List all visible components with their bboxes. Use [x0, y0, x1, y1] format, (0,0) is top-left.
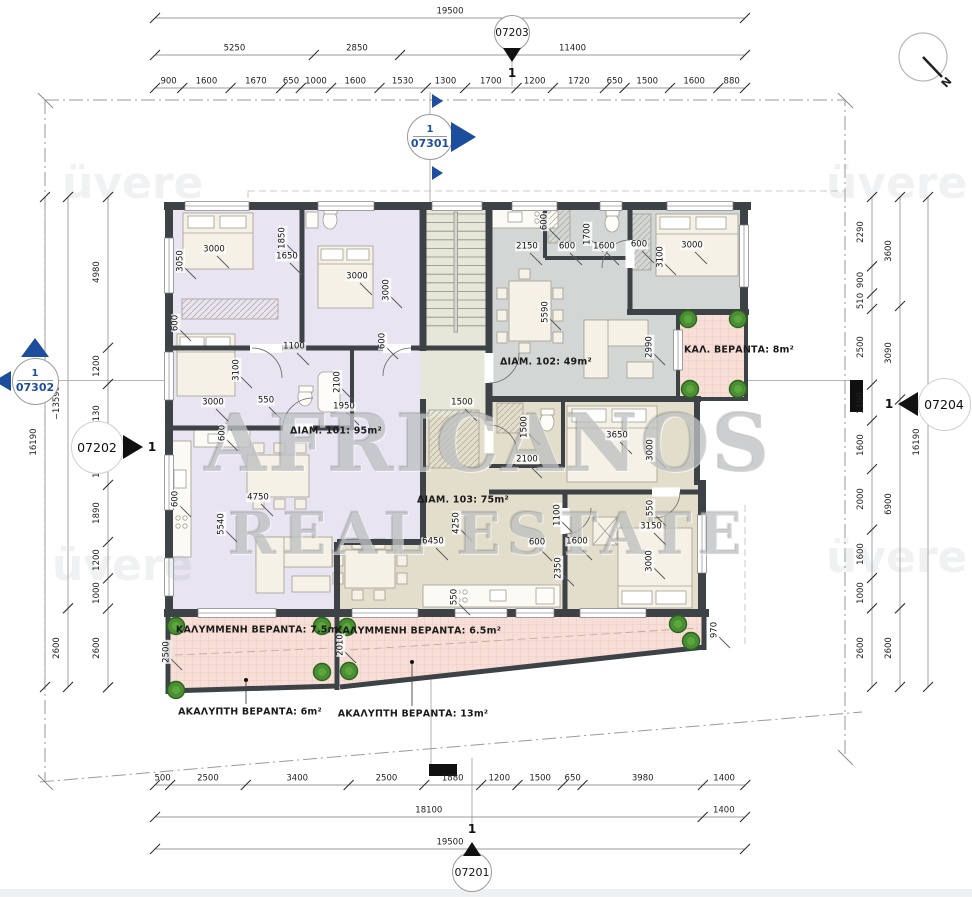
- dim-value: 1600: [344, 78, 366, 87]
- room-dim-value: 600: [378, 332, 387, 350]
- area-label: ΔΙΑΜ. 101: 95m²: [290, 426, 382, 437]
- room-dim-value: 3100: [232, 358, 241, 382]
- room-dim-value: 550: [646, 499, 655, 517]
- dim-value: 1200: [93, 549, 102, 571]
- dim-value: 2500: [857, 336, 866, 358]
- marker-arrow-right: [451, 122, 476, 152]
- dim-value: 19500: [436, 8, 463, 17]
- dim-value: 3980: [632, 775, 654, 784]
- room-dim-value: 1100: [282, 342, 306, 351]
- marker-07202: 07202: [71, 421, 124, 474]
- marker-07302: 107302: [12, 358, 59, 405]
- dim-value: 1500: [636, 78, 658, 87]
- dim-value: 1700: [480, 78, 502, 87]
- marker-id: 07302: [16, 381, 54, 394]
- dim-value: 1670: [245, 78, 267, 87]
- labels-layer: 1950052502850114009001600167065010001600…: [0, 0, 972, 897]
- area-label: ΔΙΑΜ. 102: 49m²: [500, 357, 592, 368]
- marker-number: 1: [508, 66, 516, 80]
- dim-value: 1000: [305, 78, 327, 87]
- dim-value: 2000: [857, 489, 866, 511]
- marker-id: 07301: [411, 137, 449, 150]
- dim-value: 650: [565, 775, 581, 784]
- room-dim-value: 1500: [520, 415, 529, 439]
- marker-id: 07201: [455, 866, 490, 879]
- dim-value: 1720: [568, 78, 590, 87]
- marker-arrow-left: [898, 392, 918, 416]
- room-dim-value: 3050: [176, 249, 185, 273]
- dim-value: 1000: [857, 582, 866, 604]
- area-label: ΑΚΑΛΥΠΤΗ ΒΕΡΑΝΤΑ: 6m²: [178, 707, 322, 718]
- dim-value: 650: [283, 78, 299, 87]
- dim-value: 2600: [857, 637, 866, 659]
- dim-value: 1890: [93, 503, 102, 525]
- dim-value: 1400: [713, 775, 735, 784]
- marker-number: 1: [885, 397, 893, 411]
- room-dim-value: 970: [710, 621, 719, 639]
- dim-value: 1600: [683, 78, 705, 87]
- dim-value: 2500: [376, 775, 398, 784]
- marker-wedge-bottom: [432, 166, 443, 180]
- room-dim-value: 600: [528, 538, 546, 547]
- room-dim-value: 600: [218, 424, 227, 442]
- marker-07201: 07201: [452, 852, 492, 892]
- marker-wedge-left: [0, 371, 11, 391]
- dim-value: 1400: [713, 807, 735, 816]
- room-dim-value: 2350: [554, 556, 563, 580]
- marker-id: 07202: [77, 440, 117, 455]
- marker-07204: 07204: [918, 378, 971, 431]
- dim-value: 2600: [53, 637, 62, 659]
- room-dim-value: 600: [171, 314, 180, 332]
- room-dim-value: 2100: [333, 370, 342, 394]
- dim-value: 2600: [885, 637, 894, 659]
- dim-value: 19500: [436, 839, 463, 848]
- dim-value: 2290: [857, 221, 866, 243]
- room-dim-value: 3000: [680, 241, 704, 250]
- area-label: ΑΚΑΛΥΠΤΗ ΒΕΡΑΝΤΑ: 13m²: [338, 709, 489, 720]
- marker-wedge-top: [432, 94, 443, 108]
- marker-arrow-up: [21, 338, 49, 357]
- room-dim-value: 3000: [201, 398, 225, 407]
- dim-value: 2850: [346, 45, 368, 54]
- marker-arrow-right: [123, 435, 143, 459]
- area-label: ΚΑΛΥΜΜΕΝΗ ΒΕΡΑΝΤΑ: 7.5m²: [176, 625, 342, 636]
- dim-value: 1500: [529, 775, 551, 784]
- area-label: ΔΙΑΜ. 103: 75m²: [417, 495, 509, 506]
- dim-value: 18100: [415, 807, 442, 816]
- dim-value: 16190: [30, 428, 39, 455]
- marker-number: 1: [17, 368, 52, 381]
- dim-value: 1530: [392, 78, 414, 87]
- dim-value: 3400: [286, 775, 308, 784]
- dim-value: 1600: [857, 543, 866, 565]
- dim-value: 6900: [885, 493, 894, 515]
- dim-value: 510: [857, 293, 866, 309]
- room-dim-value: 2100: [515, 455, 539, 464]
- room-dim-value: 600: [630, 240, 648, 249]
- dim-value: 500: [154, 775, 170, 784]
- room-dim-value: 3650: [605, 431, 629, 440]
- dim-value: 1600: [196, 78, 218, 87]
- room-dim-value: 1600: [565, 537, 589, 546]
- room-dim-value: 1950: [332, 402, 356, 411]
- dim-value: 4980: [93, 262, 102, 284]
- floor-plan-canvas: AFRICANOS REAL ESTATE N 1950052502850114…: [0, 0, 972, 897]
- dim-value: 1200: [93, 355, 102, 377]
- dim-value: 5250: [224, 45, 246, 54]
- marker-07301: 107301: [407, 114, 453, 160]
- marker-number: 1: [413, 124, 447, 137]
- dim-value: 1190: [857, 392, 866, 414]
- marker-number: 1: [148, 440, 156, 454]
- marker-number: 1: [468, 822, 476, 836]
- dim-value: 3090: [885, 342, 894, 364]
- dim-value: 880: [724, 78, 740, 87]
- room-dim-value: 3000: [382, 278, 391, 302]
- room-dim-value: 5590: [541, 300, 550, 324]
- dim-value: 16190: [913, 428, 922, 455]
- marker-arrow-up: [463, 842, 481, 856]
- dim-value: 900: [857, 272, 866, 288]
- room-dim-value: 3100: [656, 245, 665, 269]
- dim-value: 1200: [524, 78, 546, 87]
- room-dim-value: 2990: [645, 335, 654, 359]
- room-dim-value: 3000: [645, 549, 654, 573]
- room-dim-value: 3000: [202, 245, 226, 254]
- marker-id: 07204: [924, 397, 964, 412]
- dim-value: 1000: [93, 583, 102, 605]
- marker-arrow-down: [503, 48, 521, 62]
- room-dim-value: 2150: [515, 242, 539, 251]
- dim-value: 650: [607, 78, 623, 87]
- room-dim-value: 1600: [592, 242, 616, 251]
- room-dim-value: 5540: [217, 512, 226, 536]
- dim-value: 900: [160, 78, 176, 87]
- room-dim-value: 600: [171, 490, 180, 508]
- dim-value: 1600: [857, 434, 866, 456]
- dim-value: 2600: [93, 637, 102, 659]
- room-dim-value: 2500: [162, 640, 171, 664]
- dim-value: 2500: [197, 775, 219, 784]
- room-dim-value: 550: [257, 396, 275, 405]
- room-dim-value: 1500: [450, 398, 474, 407]
- room-dim-value: 3000: [345, 272, 369, 281]
- room-dim-value: 600: [540, 213, 549, 231]
- dim-value: 1200: [488, 775, 510, 784]
- room-dim-value: 550: [450, 588, 459, 606]
- dim-value: 1880: [442, 775, 464, 784]
- room-dim-value: 4250: [452, 511, 461, 535]
- room-dim-value: 6450: [421, 537, 445, 546]
- room-dim-value: 4750: [246, 493, 270, 502]
- room-dim-value: 1650: [275, 252, 299, 261]
- dim-value: 3600: [885, 241, 894, 263]
- dim-value: 11400: [559, 45, 586, 54]
- room-dim-value: 1850: [278, 226, 287, 250]
- room-dim-value: 600: [558, 242, 576, 251]
- area-label: ΚΑΛΥΜΜΕΝΗ ΒΕΡΑΝΤΑ: 6.5m²: [335, 626, 501, 637]
- dim-value: 1300: [435, 78, 457, 87]
- room-dim-value: 3000: [646, 438, 655, 462]
- room-dim-value: 3150: [639, 522, 663, 531]
- marker-id: 07203: [495, 27, 528, 39]
- room-dim-value: 2010: [336, 633, 345, 657]
- room-dim-value: 1100: [553, 503, 562, 527]
- marker-07203: 07203: [494, 15, 530, 51]
- area-label: ΚΑΛ. ΒΕΡΑΝΤΑ: 8m²: [684, 345, 794, 356]
